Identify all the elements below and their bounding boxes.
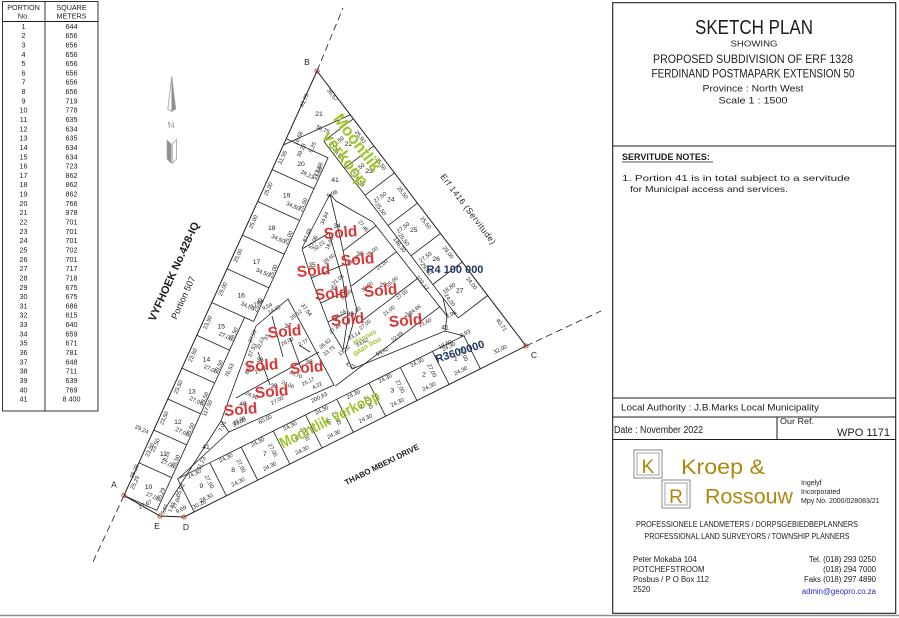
svg-text:15: 15 xyxy=(218,324,226,331)
svg-text:6: 6 xyxy=(22,68,26,77)
svg-text:Kroep &: Kroep & xyxy=(681,456,765,479)
svg-text:769: 769 xyxy=(66,385,78,394)
svg-text:22: 22 xyxy=(20,218,28,227)
svg-text:B: B xyxy=(304,57,310,67)
svg-text:862: 862 xyxy=(66,171,78,180)
svg-text:686: 686 xyxy=(66,301,78,310)
svg-text:admin@geopro.co.za: admin@geopro.co.za xyxy=(802,587,877,596)
svg-text:33: 33 xyxy=(20,320,28,329)
svg-text:SHOWING: SHOWING xyxy=(731,39,778,49)
svg-text:18: 18 xyxy=(20,180,28,189)
svg-text:A: A xyxy=(111,480,117,490)
svg-text:Sold: Sold xyxy=(388,311,423,331)
svg-text:Sold: Sold xyxy=(289,358,324,378)
svg-text:37: 37 xyxy=(20,357,28,366)
svg-text:28: 28 xyxy=(20,273,28,282)
svg-text:8 400: 8 400 xyxy=(63,395,81,404)
svg-text:635: 635 xyxy=(66,115,78,124)
svg-text:634: 634 xyxy=(66,152,78,161)
svg-text:14: 14 xyxy=(203,356,211,363)
svg-text:13: 13 xyxy=(188,388,196,395)
svg-text:639: 639 xyxy=(66,376,78,385)
svg-text:Scale 1 : 1500: Scale 1 : 1500 xyxy=(719,96,788,107)
svg-text:27: 27 xyxy=(456,287,464,294)
svg-text:718: 718 xyxy=(66,273,78,282)
svg-text:18: 18 xyxy=(268,225,276,232)
svg-text:656: 656 xyxy=(66,68,78,77)
svg-text:29: 29 xyxy=(20,283,28,292)
svg-text:702: 702 xyxy=(66,246,78,255)
svg-text:656: 656 xyxy=(66,78,78,87)
svg-text:Sold: Sold xyxy=(296,261,331,281)
svg-text:K: K xyxy=(642,457,655,478)
svg-text:648: 648 xyxy=(66,357,78,366)
svg-text:Sold: Sold xyxy=(330,310,365,330)
svg-text:3: 3 xyxy=(22,40,26,49)
svg-text:8: 8 xyxy=(22,87,26,96)
svg-text:21: 21 xyxy=(20,208,28,217)
svg-text:36: 36 xyxy=(20,348,28,357)
svg-text:862: 862 xyxy=(66,190,78,199)
svg-text:717: 717 xyxy=(66,264,78,273)
svg-text:7: 7 xyxy=(263,451,267,458)
svg-text:R: R xyxy=(669,487,683,508)
svg-text:862: 862 xyxy=(66,180,78,189)
svg-text:8: 8 xyxy=(231,467,235,474)
svg-text:20: 20 xyxy=(20,199,28,208)
svg-text:Sold: Sold xyxy=(244,356,279,376)
svg-text:25: 25 xyxy=(20,246,28,255)
svg-text:PROPOSED SUBDIVISION OF ERF 13: PROPOSED SUBDIVISION OF ERF 1328 xyxy=(653,52,853,66)
svg-text:C: C xyxy=(531,350,537,360)
svg-text:41: 41 xyxy=(20,395,28,404)
svg-text:16: 16 xyxy=(20,162,28,171)
svg-text:Sold: Sold xyxy=(363,281,398,301)
svg-text:Sold: Sold xyxy=(254,382,289,402)
svg-text:7: 7 xyxy=(22,78,26,87)
svg-text:Posbus / P O Box 112: Posbus / P O Box 112 xyxy=(633,575,709,584)
svg-text:9: 9 xyxy=(22,96,26,105)
svg-text:POTCHEFSTROOM: POTCHEFSTROOM xyxy=(633,565,704,574)
svg-text:No.: No. xyxy=(18,12,29,21)
svg-text:R4 100 000: R4 100 000 xyxy=(427,264,484,276)
svg-text:30: 30 xyxy=(20,292,28,301)
svg-text:675: 675 xyxy=(66,283,78,292)
svg-text:656: 656 xyxy=(66,87,78,96)
svg-text:32: 32 xyxy=(20,311,28,320)
svg-text:634: 634 xyxy=(66,143,78,152)
svg-text:34: 34 xyxy=(20,329,28,338)
svg-text:Date : November 2022: Date : November 2022 xyxy=(614,425,703,436)
svg-text:Mpy No. 2000/028083/21: Mpy No. 2000/028083/21 xyxy=(801,498,880,505)
svg-text:Ingelyf: Ingelyf xyxy=(801,480,822,487)
svg-text:23: 23 xyxy=(20,227,28,236)
svg-text:Peter Mokaba 104: Peter Mokaba 104 xyxy=(633,555,697,564)
svg-text:SERVITUDE NOTES:: SERVITUDE NOTES: xyxy=(622,152,710,162)
svg-text:701: 701 xyxy=(66,227,78,236)
svg-text:701: 701 xyxy=(66,255,78,264)
svg-text:Tel. (018) 293 0250: Tel. (018) 293 0250 xyxy=(809,555,877,564)
svg-text:41: 41 xyxy=(441,325,449,332)
svg-text:PROFESSIONAL LAND SURVEYORS /: PROFESSIONAL LAND SURVEYORS / TOWNSHIP P… xyxy=(645,532,850,541)
svg-text:781: 781 xyxy=(66,348,78,357)
svg-text:D: D xyxy=(183,522,189,532)
svg-text:Sold: Sold xyxy=(340,250,375,270)
svg-text:40: 40 xyxy=(20,385,28,394)
svg-text:766: 766 xyxy=(66,199,78,208)
svg-text:Faks (018) 297 4890: Faks (018) 297 4890 xyxy=(804,575,877,584)
svg-text:27: 27 xyxy=(20,264,28,273)
svg-text:E: E xyxy=(154,521,160,531)
svg-text:13: 13 xyxy=(20,134,28,143)
svg-text:39: 39 xyxy=(20,376,28,385)
svg-text:675: 675 xyxy=(66,292,78,301)
svg-text:2: 2 xyxy=(422,372,426,379)
svg-text:9: 9 xyxy=(199,483,203,490)
svg-text:634: 634 xyxy=(66,124,78,133)
svg-text:719: 719 xyxy=(66,96,78,105)
svg-text:41: 41 xyxy=(331,177,339,184)
svg-text:Our Ref.: Our Ref. xyxy=(780,417,814,426)
svg-text:26: 26 xyxy=(20,255,28,264)
svg-text:20: 20 xyxy=(297,161,305,168)
svg-text:1. Portion 41 is in total subj: 1. Portion 41 is in total subject to a s… xyxy=(622,173,850,183)
svg-text:PROFESSIONELE LANDMETERS / DOR: PROFESSIONELE LANDMETERS / DORPSGEBIEDBE… xyxy=(636,520,858,529)
svg-text:Sold: Sold xyxy=(223,400,258,420)
svg-text:for Municipal access and servi: for Municipal access and services. xyxy=(630,184,788,194)
svg-text:Sold: Sold xyxy=(323,223,358,243)
svg-text:FERDINAND POSTMAPARK EXTENSION: FERDINAND POSTMAPARK EXTENSION 50 xyxy=(652,67,855,81)
svg-text:644: 644 xyxy=(66,22,78,31)
svg-text:17: 17 xyxy=(253,259,261,266)
svg-text:Sold: Sold xyxy=(267,322,302,342)
svg-text:656: 656 xyxy=(66,59,78,68)
svg-text:24: 24 xyxy=(387,197,395,204)
svg-text:Rossouw: Rossouw xyxy=(705,486,794,509)
svg-text:2520: 2520 xyxy=(633,585,651,594)
svg-text:640: 640 xyxy=(66,320,78,329)
svg-text:14: 14 xyxy=(20,143,28,152)
svg-text:38: 38 xyxy=(20,367,28,376)
svg-text:10: 10 xyxy=(145,484,153,491)
svg-text:711: 711 xyxy=(66,367,77,376)
svg-text:12: 12 xyxy=(174,419,182,426)
svg-text:656: 656 xyxy=(66,40,78,49)
svg-text:778: 778 xyxy=(66,106,78,115)
svg-text:19: 19 xyxy=(283,192,291,199)
svg-text:1: 1 xyxy=(22,22,26,31)
svg-text:Local Authority : J.B.Marks Lo: Local Authority : J.B.Marks Local Munici… xyxy=(621,403,820,413)
svg-text:35: 35 xyxy=(20,339,28,348)
svg-text:Province : North West: Province : North West xyxy=(703,84,804,95)
svg-text:21: 21 xyxy=(315,111,323,118)
svg-text:5: 5 xyxy=(22,59,26,68)
svg-text:10: 10 xyxy=(20,106,28,115)
svg-text:635: 635 xyxy=(66,134,78,143)
svg-text:19: 19 xyxy=(20,190,28,199)
svg-text:656: 656 xyxy=(66,50,78,59)
svg-text:16: 16 xyxy=(237,293,245,300)
svg-text:656: 656 xyxy=(66,31,78,40)
svg-text:701: 701 xyxy=(66,218,78,227)
svg-text:15: 15 xyxy=(20,152,28,161)
svg-text:11: 11 xyxy=(20,115,27,124)
svg-text:25: 25 xyxy=(410,227,418,234)
svg-text:3: 3 xyxy=(390,388,394,395)
svg-text:WPO 1171: WPO 1171 xyxy=(837,427,890,439)
svg-text:659: 659 xyxy=(66,329,78,338)
svg-text:4: 4 xyxy=(22,50,26,59)
svg-text:2: 2 xyxy=(22,31,26,40)
svg-text:Incorporated: Incorporated xyxy=(801,489,840,496)
svg-text:978: 978 xyxy=(66,208,78,217)
svg-text:SKETCH PLAN: SKETCH PLAN xyxy=(695,17,813,39)
svg-text:671: 671 xyxy=(66,339,78,348)
svg-text:615: 615 xyxy=(66,311,78,320)
svg-text:METERS: METERS xyxy=(57,12,87,21)
svg-text:24: 24 xyxy=(20,236,28,245)
svg-text:(018) 294 7000: (018) 294 7000 xyxy=(823,565,877,574)
svg-text:12: 12 xyxy=(20,124,28,133)
svg-text:17: 17 xyxy=(20,171,28,180)
svg-text:Sold: Sold xyxy=(314,284,349,304)
svg-text:723: 723 xyxy=(66,162,78,171)
svg-text:26: 26 xyxy=(432,256,440,263)
svg-text:701: 701 xyxy=(66,236,78,245)
svg-text:31: 31 xyxy=(20,301,28,310)
